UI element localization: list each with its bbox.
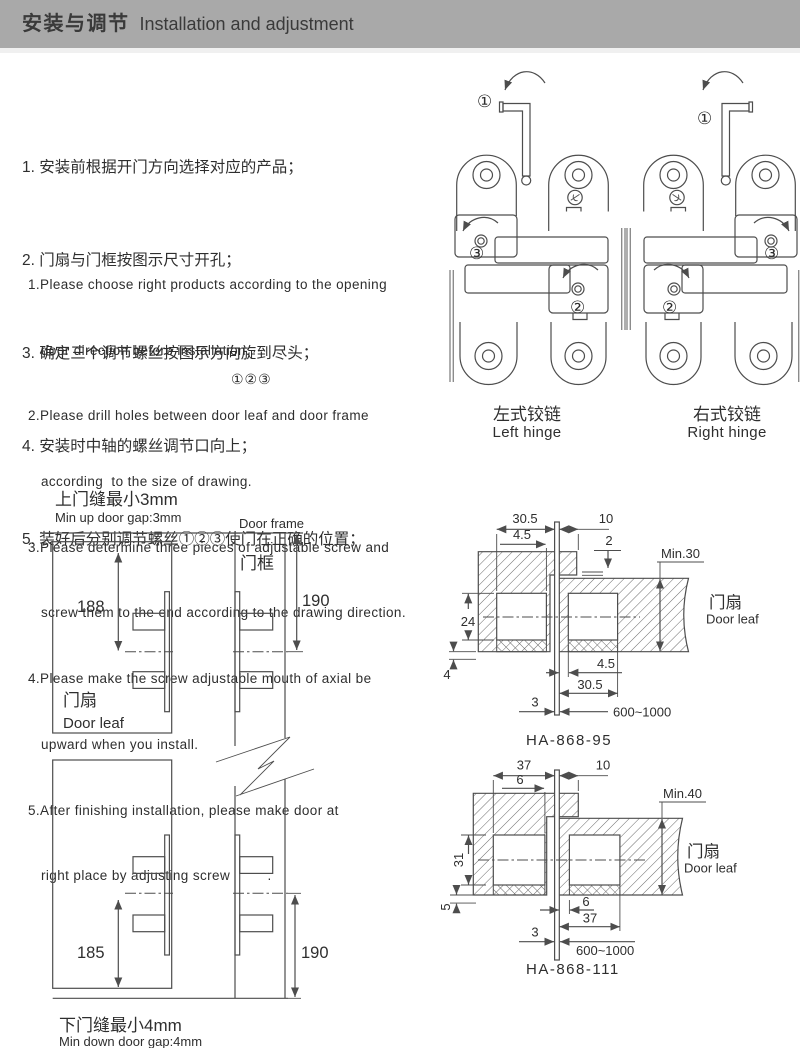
dim-4-5-top: 4.5 [513,527,531,542]
hinge-center-plate [555,770,560,960]
hinge-center-plate [555,522,560,715]
dim-31: 31 [451,853,466,867]
dim-10: 10 [599,511,613,526]
break-symbol-icon [216,737,314,796]
instruction-en-1: 1.Please choose right products according… [28,274,406,296]
door-leaf-label-en: Door leaf [63,715,125,732]
model-label: HA-868-111 [526,961,620,978]
dim-2: 2 [605,533,612,548]
callout-2-left: ② [570,299,585,317]
callout-1-left: ① [477,93,492,111]
dim-24: 24 [461,614,475,629]
leaf-label-en: Door leaf [684,861,737,876]
callout-2-right: ② [662,299,677,317]
dim-5: 5 [438,903,453,910]
gap-title-top-zh: 上门缝最小3mm [55,490,178,509]
gap-title-bottom-en: Min down door gap:4mm [59,1034,202,1048]
dim-37-bottom: 37 [583,911,597,926]
dim-label-190-top: 190 [302,592,330,610]
left-hinge-drawing [445,60,630,400]
dim-30-5-bottom: 30.5 [577,677,602,692]
dim-10: 10 [596,758,610,773]
left-hinge-label-zh: 左式铰链 [462,400,592,425]
dim-3: 3 [531,925,538,940]
callout-3-left: ③ [469,245,484,263]
gap-title-bottom-zh: 下门缝最小4mm [59,1016,182,1035]
callout-3-right: ③ [764,245,779,263]
instruction-zh-1: 1. 安装前根据开门方向选择对应的产品； [22,152,365,183]
dim-4: 4 [443,667,450,682]
dim-6-bottom: 6 [582,894,589,909]
dim-min30: Min.30 [661,546,700,561]
gap-title-top-en: Min up door gap:3mm [55,510,181,525]
dim-3: 3 [531,695,538,710]
circled-numbers-note: ①②③ [231,369,272,391]
page-title-zh: 安装与调节 [0,0,130,48]
door-frame-label-zh: 门框 [240,554,274,573]
leaf-label-zh: 门扇 [687,842,720,861]
page-title-en: Installation and adjustment [140,0,354,48]
door-leaf-label-zh: 门扇 [63,691,97,710]
door-frame-column [235,533,285,998]
instruction-en-1b: door direction before installation. [28,340,406,362]
door-gap-drawing: 上门缝最小3mm Min up door gap:3mm Door frame … [30,485,330,1048]
dim-6-top: 6 [516,772,523,787]
dim-min40: Min.40 [663,786,702,801]
page-header: 安装与调节Installation and adjustment [0,0,800,48]
right-hinge-label-en: Right hinge [662,424,792,441]
dim-30-5-top: 30.5 [512,511,537,526]
dim-label-185: 185 [77,944,105,962]
leaf-label-en: Door leaf [706,612,759,627]
model-label: HA-868-95 [526,732,612,749]
door-leaf-bottom-rect [53,760,172,988]
rotate-arrow-key-icon [505,72,545,90]
dim-door-width: 600~1000 [613,705,671,720]
right-hinge-label-zh: 右式铰链 [662,400,792,425]
dim-door-width: 600~1000 [576,943,634,958]
left-hinge-label-en: Left hinge [462,424,592,441]
cross-section-111: 37 10 6 Min.40 31 5 6 37 3 600~1000 门扇 D… [440,760,800,1010]
door-frame-label-en: Door frame [239,516,304,531]
dim-label-188: 188 [77,598,105,616]
leaf-label-zh: 门扇 [709,593,742,612]
dim-37-top: 37 [517,758,531,773]
instruction-en-2: 2.Please drill holes between door leaf a… [28,405,406,427]
cross-section-95: 30.5 10 4.5 2 Min.30 24 4 4.5 30.5 3 600… [440,505,800,755]
dim-label-190-bottom: 190 [301,944,329,962]
callout-1-right: ① [697,110,712,128]
manual-page: 安装与调节Installation and adjustment 1. 安装前根… [0,0,800,1048]
rotate-arrow-key-icon [703,72,743,90]
dim-4-5-bottom: 4.5 [597,656,615,671]
